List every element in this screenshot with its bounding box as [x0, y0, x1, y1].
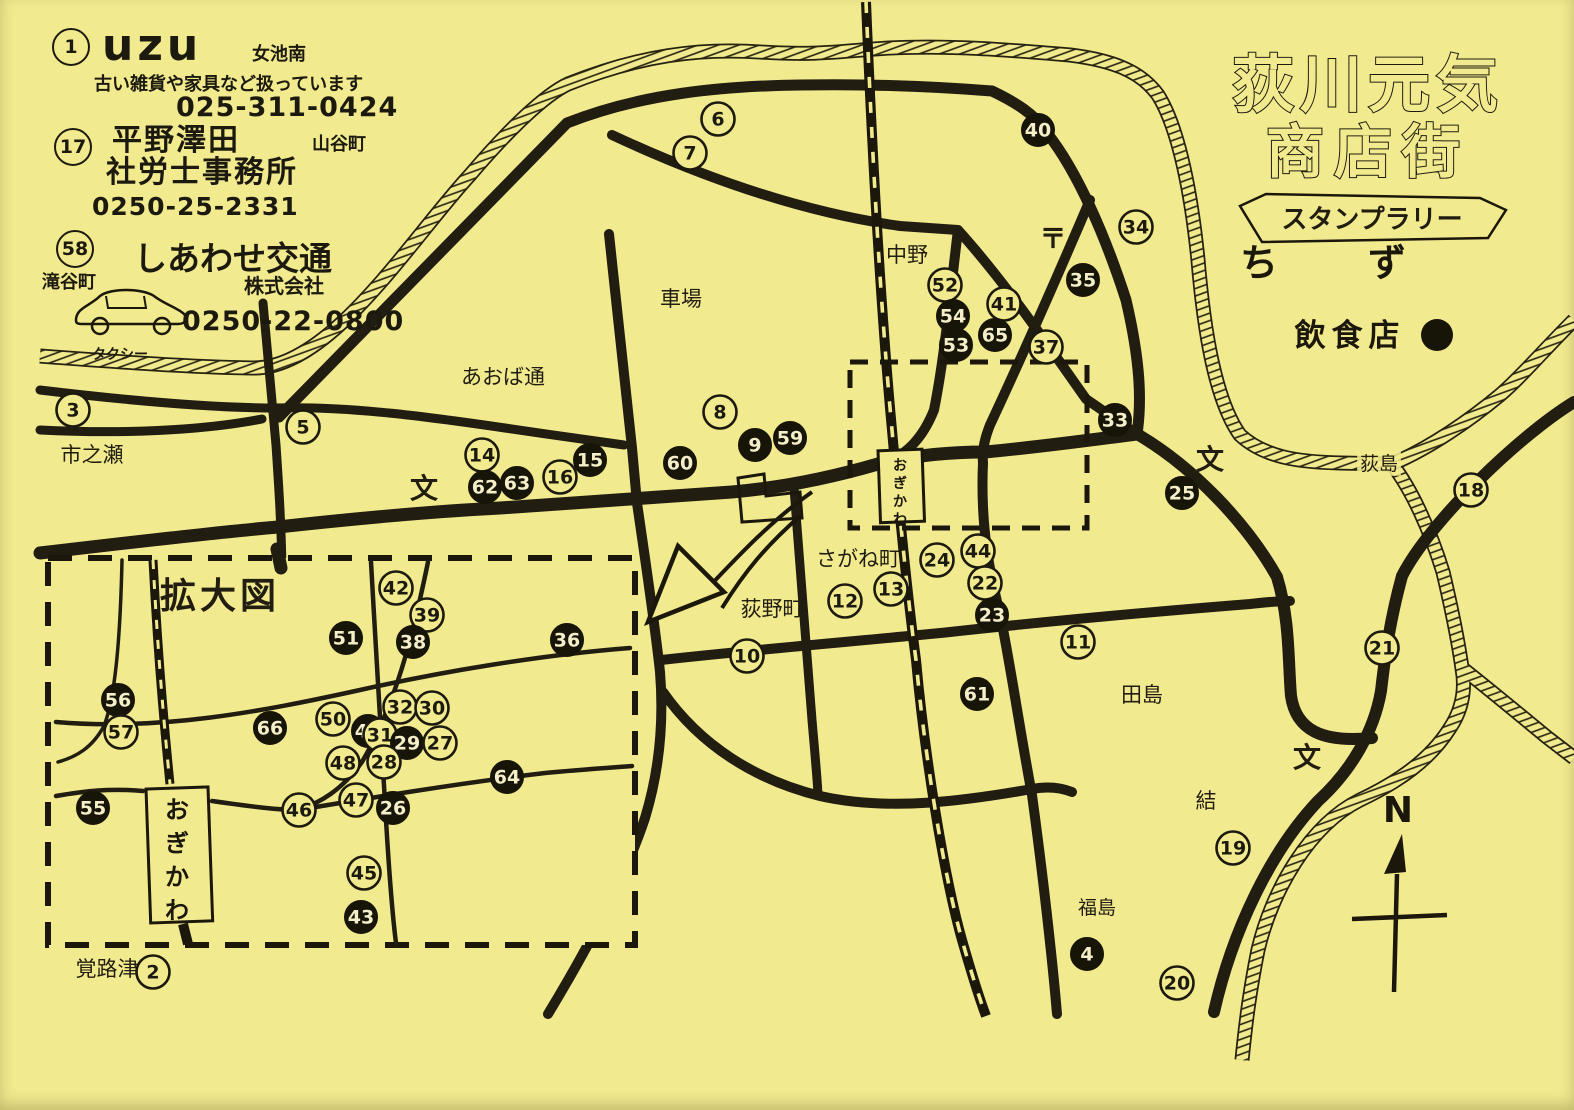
- banner-text: スタンプラリー: [1281, 205, 1462, 235]
- marker-number: 62: [472, 477, 498, 499]
- legend-label: 飲食店: [1295, 318, 1406, 354]
- stamp-marker-10: 10: [731, 640, 764, 673]
- stamp-marker-33: 33: [1099, 404, 1132, 437]
- place-label: さがね町: [816, 547, 900, 571]
- place-label: 結: [1196, 789, 1217, 813]
- marker-number: 63: [504, 473, 530, 495]
- marker-number: 54: [940, 306, 966, 328]
- place-label: 田島: [1121, 683, 1163, 707]
- inset-road-stub-top: [277, 549, 281, 568]
- marker-number: 26: [380, 798, 406, 820]
- marker-number: 21: [1369, 638, 1395, 660]
- subtitle: ちず: [1240, 241, 1496, 285]
- place-label: 荻野町: [741, 597, 804, 621]
- marker-number: 48: [330, 753, 356, 775]
- marker-number: 16: [547, 467, 573, 489]
- place-label: 荻島: [1360, 453, 1398, 475]
- marker-number: 35: [1070, 270, 1096, 292]
- inset-stamp-marker-50: 50: [317, 703, 350, 736]
- stamp-marker-8: 8: [704, 396, 737, 429]
- stamp-marker-7: 7: [674, 137, 707, 170]
- marker-number: 50: [320, 709, 346, 731]
- stamp-marker-63: 63: [501, 467, 534, 500]
- marker-number: 19: [1220, 838, 1246, 860]
- ad-hirano-sawada: 17 平野澤田 山谷町 社労士事務所 0250-25-2331: [30, 128, 450, 228]
- marker-number: 27: [427, 733, 453, 755]
- inset-stamp-marker-43: 43: [345, 901, 378, 934]
- stamp-marker-44: 44: [962, 535, 995, 568]
- road-bottom-horizontal: [663, 692, 1072, 804]
- inset-stamp-marker-56: 56: [102, 684, 135, 717]
- inset-stamp-marker-46: 46: [283, 794, 316, 827]
- stamp-marker-61: 61: [961, 678, 994, 711]
- station-sign: おぎかわ: [146, 787, 213, 925]
- scanned-map-page: 拡大図 荻川元気 商店街 スタンプラリー ちず 飲食店 N おぎかわおぎかわ 市…: [0, 0, 1574, 1110]
- station-sign: おぎかわ: [878, 449, 924, 528]
- marker-number: 11: [1065, 632, 1091, 654]
- stamp-marker-14: 14: [466, 439, 499, 472]
- marker-number: 40: [1025, 120, 1051, 142]
- stamp-marker-62: 62: [469, 471, 502, 504]
- marker-number: 36: [554, 630, 580, 652]
- ad-shiawase-kotsu: 58 滝谷町 しあわせ交通 株式会社 タクシー 0250-22-0800: [30, 228, 450, 348]
- marker-number: 3: [66, 400, 79, 422]
- marker-number: 66: [257, 718, 283, 740]
- marker-number: 56: [105, 690, 131, 712]
- stamp-marker-4: 4: [1071, 938, 1104, 971]
- inset-stamp-marker-48: 48: [327, 747, 360, 780]
- inset-stamp-marker-38: 38: [397, 626, 430, 659]
- marker-number: 45: [351, 863, 377, 885]
- stamp-marker-19: 19: [1217, 832, 1250, 865]
- marker-number: 2: [146, 962, 159, 984]
- marker-number: 14: [469, 445, 495, 467]
- stamp-marker-13: 13: [875, 573, 908, 606]
- legend-restaurant-dot: [1421, 319, 1453, 351]
- place-label: 中野: [886, 243, 928, 267]
- marker-number: 39: [414, 605, 440, 627]
- marker-number: 10: [734, 646, 760, 668]
- inset-stamp-marker-57: 57: [105, 716, 138, 749]
- ad-shiawase-subname: 株式会社: [244, 270, 324, 299]
- marker-number: 9: [748, 435, 761, 457]
- ad-hirano-phone: 0250-25-2331: [92, 192, 299, 221]
- stamp-marker-65: 65: [979, 319, 1012, 352]
- marker-number: 25: [1169, 483, 1195, 505]
- page-title-line2: 商店街: [1266, 118, 1470, 186]
- stamp-marker-9: 9: [739, 429, 772, 462]
- marker-number: 22: [972, 573, 998, 595]
- marker-number: 41: [991, 294, 1017, 316]
- stamp-marker-53: 53: [940, 329, 973, 362]
- place-label: 文: [1293, 741, 1321, 774]
- compass: N: [1352, 790, 1447, 992]
- inset-stamp-marker-26: 26: [377, 792, 410, 825]
- marker-number: 32: [387, 697, 413, 719]
- inset-stamp-marker-42: 42: [380, 572, 413, 605]
- marker-number: 23: [979, 605, 1005, 627]
- marker-number: 7: [683, 143, 696, 165]
- road-upper-left-1: [40, 390, 624, 445]
- inset-stamp-marker-30: 30: [416, 692, 449, 725]
- stamp-marker-25: 25: [1166, 477, 1199, 510]
- stamp-marker-21: 21: [1366, 632, 1399, 665]
- place-label: 文: [1196, 443, 1224, 476]
- ad-shiawase-phone: 0250-22-0800: [182, 306, 404, 337]
- marker-number: 28: [371, 752, 397, 774]
- inset-stamp-marker-51: 51: [330, 622, 363, 655]
- marker-number: 12: [832, 591, 858, 613]
- inset-stamp-marker-66: 66: [254, 712, 287, 745]
- marker-number: 44: [965, 541, 991, 563]
- inset-stamp-marker-28: 28: [368, 746, 401, 779]
- marker-number: 6: [711, 109, 724, 131]
- inset-stamp-marker-27: 27: [424, 727, 457, 760]
- marker-number: 42: [383, 578, 409, 600]
- stamp-marker-35: 35: [1067, 264, 1100, 297]
- header-block: 荻川元気 商店街 スタンプラリー ちず 飲食店: [1232, 48, 1506, 354]
- stamp-marker-20: 20: [1161, 967, 1194, 1000]
- marker-number: 33: [1102, 410, 1128, 432]
- place-label: あおば通: [461, 365, 545, 389]
- compass-needle: [1384, 834, 1406, 874]
- place-label: 〒: [1040, 224, 1067, 255]
- marker-number: 60: [667, 453, 693, 475]
- stamp-marker-60: 60: [664, 447, 697, 480]
- ad-uzu-area: 女池南: [252, 40, 306, 66]
- marker-number: 4: [1080, 944, 1093, 966]
- compass-north-label: N: [1383, 790, 1413, 831]
- marker-number: 57: [108, 722, 134, 744]
- stamp-marker-34: 34: [1120, 211, 1153, 244]
- ad-hirano-name-line1: 平野澤田: [112, 124, 240, 157]
- marker-number: 15: [577, 450, 603, 472]
- marker-number: 52: [932, 275, 958, 297]
- ad-uzu-phone: 025-311-0424: [176, 92, 398, 123]
- stamp-marker-54: 54: [937, 300, 970, 333]
- marker-number: 65: [982, 325, 1008, 347]
- stamp-marker-18: 18: [1455, 474, 1488, 507]
- inset-title: 拡大図: [160, 576, 280, 617]
- stamp-marker-6: 6: [702, 103, 735, 136]
- inset-stamp-marker-32: 32: [384, 691, 417, 724]
- marker-number: 8: [713, 402, 726, 424]
- stamp-marker-52: 52: [929, 269, 962, 302]
- marker-number: 20: [1164, 973, 1190, 995]
- marker-number: 59: [777, 428, 803, 450]
- place-label: 覚路津: [76, 957, 139, 981]
- inset-stamp-marker-47: 47: [340, 784, 373, 817]
- ad-hirano-area: 山谷町: [312, 130, 366, 156]
- stamp-marker-16: 16: [544, 461, 577, 494]
- ad-hirano-name-line2: 社労士事務所: [106, 156, 298, 189]
- marker-number: 31: [367, 725, 393, 747]
- inset-stamp-marker-55: 55: [77, 792, 110, 825]
- marker-number: 37: [1033, 337, 1059, 359]
- stamp-marker-23: 23: [976, 599, 1009, 632]
- marker-number: 64: [494, 767, 520, 789]
- place-label: 市之瀬: [61, 443, 124, 467]
- ad-shiawase-number: 58: [56, 230, 94, 268]
- ad-uzu-number: 1: [52, 28, 90, 66]
- marker-number: 18: [1458, 480, 1484, 502]
- stamp-marker-37: 37: [1030, 331, 1063, 364]
- inset-stamp-marker-64: 64: [491, 761, 524, 794]
- marker-number: 55: [80, 798, 106, 820]
- marker-number: 13: [878, 579, 904, 601]
- stamp-marker-11: 11: [1062, 626, 1095, 659]
- marker-number: 38: [400, 632, 426, 654]
- compass-cross: [1352, 874, 1447, 992]
- place-label: 文: [410, 472, 438, 505]
- place-label: 車場: [660, 287, 702, 311]
- marker-number: 53: [943, 335, 969, 357]
- stamp-marker-15: 15: [574, 444, 607, 477]
- marker-number: 30: [419, 698, 445, 720]
- inset-stamp-marker-45: 45: [348, 857, 381, 890]
- marker-number: 47: [343, 790, 369, 812]
- stamp-marker-3: 3: [57, 394, 90, 427]
- marker-number: 61: [964, 684, 990, 706]
- marker-number: 24: [924, 550, 950, 572]
- place-label: 福島: [1078, 897, 1116, 919]
- stamp-marker-59: 59: [774, 422, 807, 455]
- stamp-marker-12: 12: [829, 585, 862, 618]
- marker-number: 5: [296, 417, 309, 439]
- inset-stamp-marker-36: 36: [551, 624, 584, 657]
- marker-number: 34: [1123, 217, 1149, 239]
- legend: 飲食店: [1295, 318, 1454, 354]
- ad-hirano-number: 17: [54, 128, 92, 166]
- marker-number: 46: [286, 800, 312, 822]
- ad-uzu-name: uzu: [102, 24, 202, 68]
- stamp-marker-22: 22: [969, 567, 1002, 600]
- marker-number: 43: [348, 907, 374, 929]
- stamp-marker-5: 5: [287, 411, 320, 444]
- marker-number: 51: [333, 628, 359, 650]
- stamp-marker-24: 24: [921, 544, 954, 577]
- stamp-marker-2: 2: [137, 956, 170, 989]
- taxi-car-icon: [66, 280, 196, 342]
- page-title-line1: 荻川元気: [1232, 48, 1504, 121]
- stamp-marker-40: 40: [1022, 114, 1055, 147]
- ad-shiawase-vehicle-label: タクシー: [92, 344, 148, 364]
- stamp-marker-41: 41: [988, 288, 1021, 321]
- ad-uzu: 1 uzu 女池南 古い雑貨や家具など扱っています 025-311-0424: [30, 18, 450, 128]
- advertisement-block: 1 uzu 女池南 古い雑貨や家具など扱っています 025-311-0424 1…: [30, 18, 450, 348]
